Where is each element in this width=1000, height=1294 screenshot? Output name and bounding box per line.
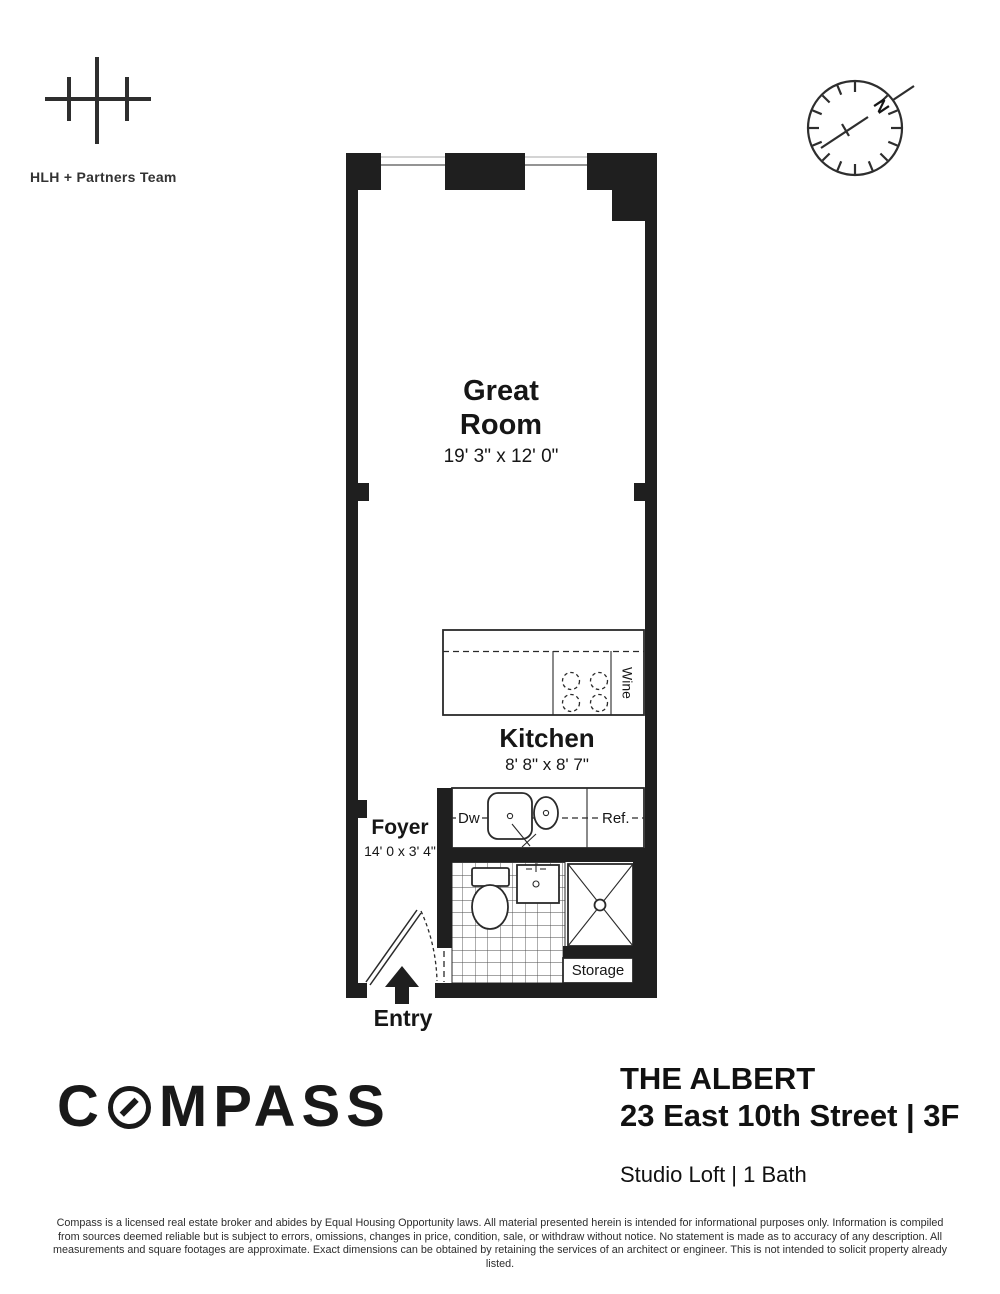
disclaimer-line-3: measurements and square footages are app… [50,1244,950,1271]
great-room-label: Great Room 19' 3" x 12' 0" [444,374,559,468]
storage-label: Storage [563,958,633,982]
disclaimer-line-2: from sources deemed reliable but is subj… [50,1231,950,1245]
foyer-dimensions: 14' 0 x 3' 4" [364,843,436,859]
listing-info: THE ALBERT 23 East 10th Street | 3F Stud… [620,1060,960,1188]
refrigerator-label: Ref. [600,810,632,827]
compass-rose-icon [808,81,914,175]
entry-label: Entry [374,1005,433,1032]
team-name: HLH + Partners Team [30,169,177,185]
unit-info: Studio Loft | 1 Bath [620,1162,960,1188]
wine-cooler-label: Wine [612,652,643,714]
entry-arrow-icon [385,966,419,1004]
kitchen-dimensions: 8' 8" x 8' 7" [499,755,594,775]
foyer-name: Foyer [364,816,436,840]
great-room-name-line1: Great [444,374,559,408]
shower [568,864,633,946]
great-room-name-line2: Room [444,408,559,442]
floorplan-page: HLH + Partners Team N Great Room 19' 3" … [0,0,1000,1294]
building-name: THE ALBERT [620,1060,960,1097]
compass-logo-c: C [57,1078,105,1136]
disclaimer-line-1: Compass is a licensed real estate broker… [50,1217,950,1231]
vanity-sink [517,863,559,903]
compass-logo-mpass: MPASS [159,1078,391,1136]
hlh-logo-mark [45,57,151,144]
toilet [472,868,509,929]
foyer-label: Foyer 14' 0 x 3' 4" [364,816,436,859]
address: 23 East 10th Street | 3F [620,1097,960,1134]
dishwasher-label: Dw [456,810,482,827]
great-room-dimensions: 19' 3" x 12' 0" [444,446,559,468]
kitchen-name: Kitchen [499,724,594,753]
kitchen-label: Kitchen 8' 8" x 8' 7" [499,724,594,775]
disclaimer: Compass is a licensed real estate broker… [50,1217,950,1271]
compass-logo: C MPASS [57,1078,391,1136]
compass-logo-o-icon [108,1086,151,1129]
